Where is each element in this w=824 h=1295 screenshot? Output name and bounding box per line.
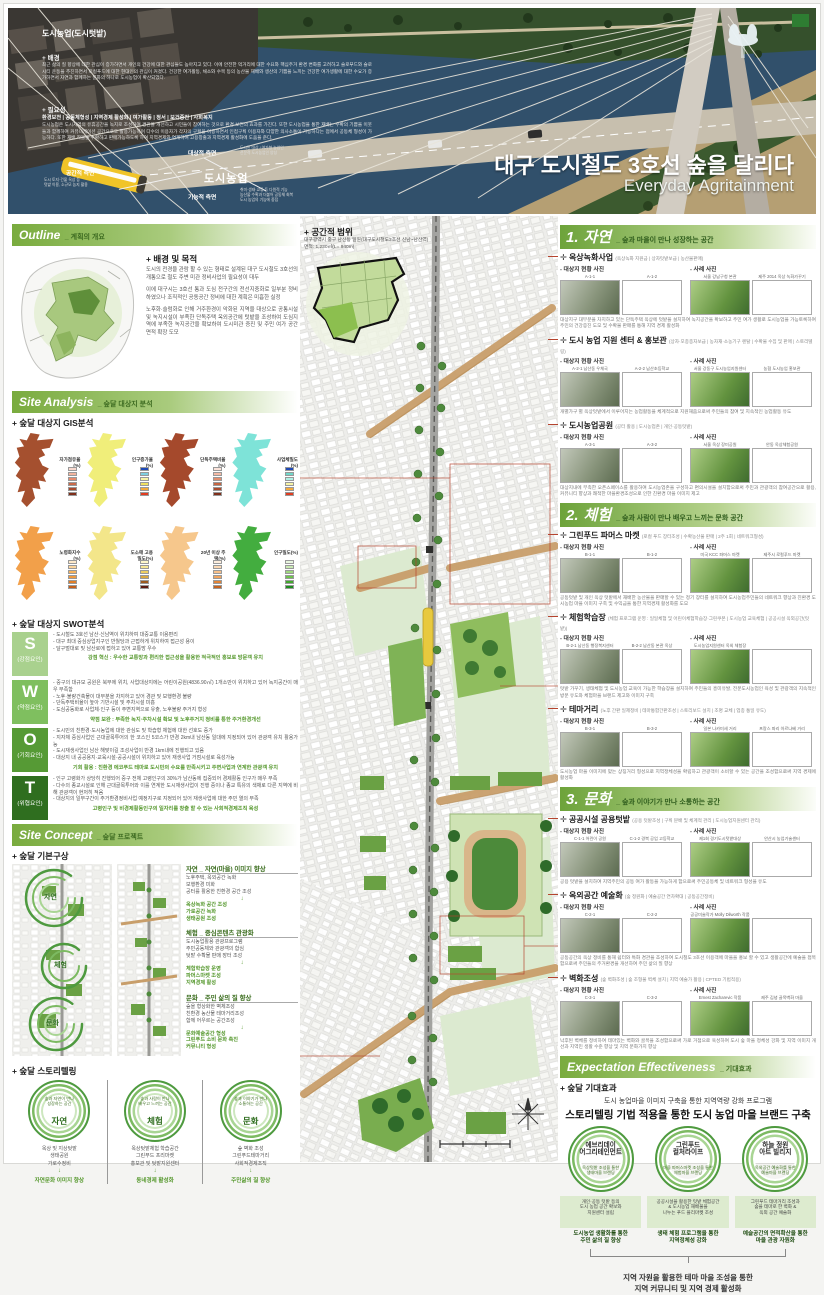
swot-row: T (위협요인) 인구 고령화가 상당히 진행되어 중구 전체 고령인구의 30… (12, 776, 298, 820)
gis-map: 자가점유율(%) (12, 431, 81, 521)
theme-result: 문화예술공간 형성 그린푸드 소비 문화 촉진 커뮤니티 형성 (186, 1031, 298, 1051)
gis-legend (68, 467, 77, 496)
story-result: 자연문화 이미지 향상 (15, 1176, 104, 1184)
gis-legend (285, 467, 294, 496)
swot-bullets: 인구 고령화가 상당히 진행되어 중구 전체 고령인구의 30%가 남산동에 집… (53, 776, 298, 803)
swot-bullet: 달구벌대로 및 남산로에 접하고 있어 교통망 우수 (53, 646, 298, 653)
photo-image (622, 842, 682, 877)
program-title: ✛ 도시농업공원 (공터 활용 | 도시농업존 | 개인·공동텃밭) (560, 420, 816, 431)
case-photos-label: - 사례 사진 (690, 542, 812, 551)
section-tagline: _ 숲과 사람이 만나 배우고 느끼는 문화 공간 (616, 513, 743, 523)
site-plan-map (300, 216, 558, 1162)
plus-icon: ✛ (560, 421, 569, 430)
case-photos-label: - 사례 사진 (690, 633, 812, 642)
pillar-result: 도시농업 생활화를 통한 주민 삶의 질 향상 (560, 1231, 641, 1246)
case-photos-label: - 사례 사진 (690, 264, 812, 273)
site-photo: B-3-2 (622, 726, 682, 767)
case-photo: 미국 KCC 파머스 마켓 (690, 552, 750, 593)
expectation-subtitle: _ 기대효과 (720, 1066, 752, 1073)
swot-list: S (강점요인) 도시철도 3호선 남산·신남역이 위치하여 대중교통 이용편리… (12, 632, 298, 820)
gis-choropleth (86, 526, 132, 600)
program-title-text: 그린푸드 파머스 마켓 (569, 531, 640, 540)
story-name: 자연 (30, 1115, 88, 1127)
case-photo: 제1회 경기도시텃밭대상 (690, 836, 750, 877)
photo-caption: 제주 2014 옥상 녹화가꾸기 (752, 274, 812, 280)
photo-image (622, 448, 682, 483)
storytelling-row: 숲과 자연이 만나 성장하는 공간 자연 옥상 및 지상텃밭 생태공원 가로수정… (12, 1080, 298, 1184)
hero-photo-banner: 도시농업(도시텃밭) + 배경 최근 삶의 질 향상에 대한 관심이 증가하면서… (8, 8, 816, 214)
swot-bullet: 대상지 내 공공용지·교육시설·공공시설이 위치하고 있어 재생사업 거점시설로… (53, 755, 298, 762)
swot-bullet: 중구의 대규모 공원은 북부에 위치, 사업대상지에는 어린이공원(4836.9… (53, 680, 298, 694)
swot-label: + 숲달 대상지 SWOT분석 (12, 618, 298, 630)
story-tagline: 숲과 이야기가 만나 소통하는 공간 (228, 1096, 274, 1107)
theme-result: 체험학습장 운영 파머스마켓 조성 지역경제 활성 (186, 966, 298, 986)
photo-image (560, 842, 620, 877)
gis-legend (140, 467, 149, 496)
section-number: 1. (566, 229, 579, 246)
program-caption: 대상지내에 부족한 오픈스페이스를 활용하여 도시농업존을 구성하고 편의시설을… (560, 485, 816, 498)
photo-image (622, 649, 682, 684)
photo-caption: B-2-1 남산동 행정복지센터 (560, 643, 620, 649)
purpose-block: + 배경 및 목적 도시의 전경을 관람 할 수 있는 형태로 설계된 대구 도… (146, 249, 298, 387)
legend-swatch (213, 482, 222, 486)
background-label: + 배경 (42, 52, 60, 62)
gis-legend (213, 560, 222, 589)
case-photo: 공공미술작가 Molly Dilworth 작품 (690, 912, 750, 953)
legend-swatch (140, 477, 149, 481)
photo-caption: 공공미술작가 Molly Dilworth 작품 (690, 912, 750, 918)
swot-bullet: 도시철도 3호선 남산·신남역이 위치하여 대중교통 이용편리 (53, 632, 298, 639)
photo-caption: C-1-2 경북 공업 고등학교 (622, 836, 682, 842)
expectation-pillar: 그린푸드 컬처라이프 마을 파머스마켓 조성을 통한 체험마을 브랜딩 공공시설… (647, 1126, 728, 1246)
program-title: ✛ 그린푸드 파머스 마켓 (로컬 푸드 장터조성 | 수확농산물 판매 | 2… (560, 530, 816, 541)
section-name: 자연 (584, 226, 612, 247)
swot-bullet: 인구 고령화가 상당히 진행되어 중구 전체 고령인구의 30%가 남산동에 집… (53, 776, 298, 783)
program-list: ✛ 공공시설 공용텃밭 (공용 텃밭조성 | 구획 분배 및 체계적 관리 | … (560, 814, 816, 1051)
photo-image (752, 842, 812, 877)
case-photos: 서울 강동구 도시농업지원센터 농협 도시농업 홍보관 (690, 366, 812, 407)
theme-items: 노후주택, 옥외공간 녹화 보행환경 미화 공터를 활용한 친환경 공간 조성 (186, 875, 298, 896)
program-block: ✛ 테마거리 (노후 간판 일제정비 | 테마통합간판조성 | 스토리보드 설치… (560, 704, 816, 782)
theme-items: 숲을 형상화한 벽체조성 친환경 농산물 테마거리조성 함께 어우르는 공간조성 (186, 1004, 298, 1025)
gis-legend (285, 560, 294, 589)
connector-lines (590, 1249, 786, 1257)
connector-stem (688, 1257, 689, 1263)
scope-text: 대구광역시 중구 남산동 일원(대구도시철도3호선 신남~남산역) (304, 238, 454, 245)
site-photo-column: - 대상지 현황 사진 C-1-1 어린이 공원 (560, 826, 682, 877)
need-text: 도시농업은 도시지역의 유휴공간을 녹지로 조성하여 경관을 개선하고 시민들이… (42, 122, 372, 142)
site-photo: B-1-2 (622, 552, 682, 593)
purpose-item: 노후화·슬럼화로 인해 거주환경이 악화된 지역을 대상으로 공통시설 및 녹지… (146, 307, 298, 337)
analysis-header: Site Analysis _ 숲달 대상지 분석 (12, 391, 298, 413)
pillar-subtitle: 마을 파머스마켓 조성을 통한 체험마을 브랜딩 (662, 1165, 714, 1176)
program-title-text: 도시농업공원 (569, 421, 613, 430)
swot-row: W (약점요인) 중구의 대규모 공원은 북부에 위치, 사업대상지에는 어린이… (12, 680, 298, 724)
pillar-result: 생태 체험 프로그램을 통한 지역정체성 강화 (647, 1231, 728, 1246)
down-arrow-icon: ↓ (206, 1168, 295, 1174)
map-leader-line (548, 708, 558, 709)
swot-bullet: 도시재생사업인 남산 해맞이길 조성사업이 반경 1km내에 진행되고 있음 (53, 748, 298, 755)
diagram-functional-desc: 취미·생태·교류 등 다원적 기능 농산물 수확과 더불어 공동체 회복 도시 … (240, 188, 335, 203)
program-sections: 1. 자연 _ 숲과 마을이 만나 성장하는 공간 ✛ 옥상녹화사업 (옥상녹화… (560, 225, 816, 1051)
scope-block: + 공간적 범위 대구광역시 중구 남산동 일원(대구도시철도3호선 신남~남산… (304, 226, 454, 251)
section-header: 1. 자연 _ 숲과 마을이 만나 성장하는 공간 (560, 225, 816, 249)
story-result: 동네경제 활성화 (111, 1176, 200, 1184)
case-photos: 공공미술작가 Molly Dilworth 작품 (690, 912, 812, 953)
swot-letter: O (12, 731, 48, 748)
site-photo: C-3-1 (560, 995, 620, 1036)
program-tags: (숲 벽화조성 | 숲 조형물 벽체 설치 | 지역 예술가 활용 | CPTE… (601, 977, 741, 982)
program-block: ✛ 옥상녹화사업 (옥상녹화 지원금 | 상자텃밭보급 | 농산물판매) - 대… (560, 252, 816, 330)
legend-swatch (285, 477, 294, 481)
site-photo-column: - 대상지 현황 사진 B-2-1 남산동 행정복지센터 (560, 633, 682, 684)
case-photo-column: - 사례 사진 서울 강남구청 본관 (690, 264, 812, 315)
gis-map: 20년 이상 주택(%) (157, 524, 226, 614)
photo-image (560, 918, 620, 953)
legend-swatch (68, 467, 77, 471)
program-title-text: 도시 농업 지원 센터 & 홍보관 (569, 336, 667, 345)
case-photo: 안산시 농업기술센터 (752, 836, 812, 877)
concept-header: Site Concept _ 숲달 프로젝트 (12, 824, 298, 846)
case-photo: 농협 도시농업 홍보관 (752, 366, 812, 407)
site-photos-label: - 대상지 현황 사진 (560, 985, 682, 994)
background-text: 최근 삶의 질 향상에 대한 관심이 증가하면서 개인의 건강에 대한 관심들도… (42, 62, 372, 82)
expectation-pillars: 에브리데이 어그리테인먼트 옥상텃밭 조성을 통한 생태마을 브랜딩 개인·공동… (560, 1126, 816, 1246)
program-title: ✛ 옥외공간 예술화 (숲 정원화 | 예술공간 연차확대 | 공동공간정비) (560, 890, 816, 901)
pillar-name: 에브리데이 어그리테인먼트 (570, 1142, 632, 1158)
site-photos-label: - 대상지 현황 사진 (560, 633, 682, 642)
photo-image (690, 1001, 750, 1036)
concept-diagram-spirals: 자연 체험 문화 (12, 864, 112, 1061)
plus-icon: ✛ (560, 705, 569, 714)
plus-icon: ✛ (560, 974, 569, 983)
photo-heading: 도시농업(도시텃밭) (42, 28, 106, 39)
legend-swatch (140, 570, 149, 574)
center-column: + 공간적 범위 대구광역시 중구 남산동 일원(대구도시철도3호선 신남~남산… (300, 216, 558, 1162)
legend-swatch (140, 560, 149, 564)
story-items: 옥상텃밭체험 학습공간 그린푸드 프리마켓 홍보관 및 텃밭지원센터 (111, 1146, 200, 1168)
site-photos: C-3-1 C-3-2 (560, 995, 682, 1036)
diagram-center: 도시농업 (204, 170, 248, 186)
site-photo: A-1-2 (622, 274, 682, 315)
site-photo: A-2-1 남산동 우체국 (560, 366, 620, 407)
site-photos-label: - 대상지 현황 사진 (560, 716, 682, 725)
legend-swatch (213, 585, 222, 589)
section-header: 3. 문화 _ 숲과 이야기가 만나 소통하는 공간 (560, 787, 816, 811)
map-leader-line (548, 977, 558, 978)
swot-letter: W (12, 683, 48, 700)
photo-image (752, 372, 812, 407)
case-photo: 제주 김녕 골목벽화 마을 (752, 995, 812, 1036)
case-photos: 서울 옥상 장미공원 안동 옥상체험공원 (690, 442, 812, 483)
site-photo: C-2-2 (622, 912, 682, 953)
swot-category: (약점요인) (12, 702, 48, 711)
photo-image (752, 649, 812, 684)
purpose-item: 도시의 전경을 관람 할 수 있는 형태로 설계된 대구 도시철도 3호선의 개… (146, 267, 298, 282)
swot-body: 인구 고령화가 상당히 진행되어 중구 전체 고령인구의 30%가 남산동에 집… (53, 776, 298, 820)
case-photo-column: - 사례 사진 서울 강동구 도시농업지원센터 (690, 356, 812, 407)
program-list: ✛ 옥상녹화사업 (옥상녹화 지원금 | 상자텃밭보급 | 농산물판매) - 대… (560, 252, 816, 498)
case-photo: 일본 나카미세 거리 (690, 726, 750, 767)
program-tags: (공용 텃밭조성 | 구획 분배 및 체계적 관리 | 도시농업지원센터 관리) (632, 818, 760, 823)
site-photo: B-2-2 남산동 본관 옥상 (622, 643, 682, 684)
swot-badge: O (기회요인) (12, 728, 48, 772)
swot-bullet: 단독주택비율이 높아 기반시설 및 주차시설 미흡 (53, 700, 298, 707)
legend-swatch (68, 560, 77, 564)
legend-swatch (68, 580, 77, 584)
legend-swatch (140, 575, 149, 579)
site-photos: B-3-1 B-3-2 (560, 726, 682, 767)
concept-diagram-plan (117, 864, 181, 1061)
need-keywords: 환경보전 | 공동체형성 | 지역경제 활성화 | 여가활동 | 정서 | 보건… (42, 114, 213, 121)
program-tags: (숲 정원화 | 예술공간 연차확대 | 공동공간정비) (625, 894, 714, 899)
program-caption: 공동공간의 옥상 정비를 통해 쉼터와 특화 경관을 조성하여 도시철도 3호선… (560, 955, 816, 968)
expectation-line1: 도시 농업마을 이미지 구축을 통한 지역역량 강화 프로그램 (560, 1096, 816, 1106)
case-photo: 프랑스 파리 아르나베 거리 (752, 726, 812, 767)
legend-swatch (140, 472, 149, 476)
photo-image (752, 280, 812, 315)
legend-swatch (140, 482, 149, 486)
swot-letter: S (12, 635, 48, 652)
plus-icon: ✛ (560, 336, 569, 345)
swot-summary: 기회 활용 : 친환경 에코푸드 테마로 도시민의 수요를 만족시키고 주변사업… (53, 764, 298, 771)
spiral-ring-icon: 에브리데이 어그리테인먼트 옥상텃밭 조성을 통한 생태마을 브랜딩 (568, 1126, 634, 1192)
photo-caption: 서울 강동구 도시농업지원센터 (690, 366, 750, 372)
legend-swatch (140, 580, 149, 584)
legend-swatch (285, 560, 294, 564)
spiral-ring-icon: 숲과 자연이 만나 성장하는 공간 자연 (28, 1080, 90, 1142)
theme-title: 자연 _ 자연(마을) 이미지 향상 (186, 864, 298, 874)
swot-row: O (기회요인) 도시민의 친환경·도시농업에 대한 관심도 및 학습형 체험에… (12, 728, 298, 772)
program-tags: (공터 활용 | 도시농업존 | 개인·공동텃밭) (615, 424, 692, 429)
story-tagline: 숲과 사람이 만나 배우고 느끼는 공간 (132, 1096, 178, 1107)
plus-icon: ✛ (560, 613, 569, 622)
site-photos: C-1-1 어린이 공원 C-1-2 경북 공업 고등학교 (560, 836, 682, 877)
story-name: 문화 (222, 1115, 280, 1127)
concept-title: Site Concept (19, 828, 92, 842)
story-items: 숲 벽화 조성 그린푸드테마거리 사회적경제조직 (206, 1146, 295, 1168)
swot-bullets: 도시철도 3호선 남산·신남역이 위치하여 대중교통 이용편리대구 최대 중심상… (53, 632, 298, 652)
gis-choropleth (231, 433, 277, 507)
program-title-text: 체험학습장 (569, 613, 606, 622)
program-block: ✛ 공공시설 공용텃밭 (공용 텃밭조성 | 구획 분배 및 체계적 관리 | … (560, 814, 816, 885)
concept-theme: 문화 _ 주민 삶의 질 향상 숲을 형상화한 벽체조성 친환경 농산물 테마거… (186, 993, 298, 1051)
site-photo: A-2-2 남산초등학교 (622, 366, 682, 407)
case-photo: 서울 강동구 도시농업지원센터 (690, 366, 750, 407)
site-photos-label: - 대상지 현황 사진 (560, 356, 682, 365)
storytelling-item: 숲과 자연이 만나 성장하는 공간 자연 옥상 및 지상텃밭 생태공원 가로수정… (12, 1080, 107, 1184)
photo-image (690, 280, 750, 315)
legend-swatch (140, 585, 149, 589)
purpose-label: + 배경 및 목적 (146, 253, 298, 265)
program-block: ✛ 옥외공간 예술화 (숲 정원화 | 예술공간 연차확대 | 공동공간정비) … (560, 890, 816, 968)
swot-bullets: 중구의 대규모 공원은 북부에 위치, 사업대상지에는 어린이공원(4836.9… (53, 680, 298, 714)
swot-summary: 약점 보완 : 부족한 녹지·주차시설 확보 및 노후주거지 정비를 통한 주거… (53, 716, 298, 723)
site-photo: B-1-1 (560, 552, 620, 593)
case-photo: 도시농업지원센터 옥외 체험장 (690, 643, 750, 684)
legend-swatch (285, 482, 294, 486)
legend-swatch (285, 585, 294, 589)
program-caption: 낙후된 벽체를 정비하여 테마있는 벽화와 골목을 조성함으로써 가로 거점으로… (560, 1038, 816, 1051)
concept-theme: 체험 _ 중심콘텐츠 관광화 도시농업활용 관광프로그램 주민공동체와 관광객의… (186, 928, 298, 986)
pillar-box: 그린푸드 테마거리 조성과 숲을 테마로 한 벽화 & 옥외 공간 예술화 (735, 1196, 816, 1228)
section-tagline: _ 숲과 마을이 만나 성장하는 공간 (616, 235, 713, 245)
analysis-subtitle: _ 숲달 대상지 분석 (98, 401, 153, 408)
expectation-label: + 숲달 기대효과 (560, 1082, 816, 1094)
spiral-ring-icon: 하늘 정원 아트 빌리지 옥외공간 예술화를 통한 예술마을 브랜딩 (742, 1126, 808, 1192)
scope-label: + 공간적 범위 (304, 226, 454, 238)
theme-title: 체험 _ 중심콘텐츠 관광화 (186, 928, 298, 938)
legend-swatch (140, 467, 149, 471)
diagram-functional-label: 기능적 측면 (188, 192, 216, 201)
photo-image (752, 732, 812, 767)
case-photo (752, 912, 812, 953)
case-photos: 도시농업지원센터 옥외 체험장 (690, 643, 812, 684)
diagram-spatial-label: 공간적 측면 (66, 168, 94, 177)
gis-map-label: 인구밀도(%) (274, 550, 298, 556)
photo-image (690, 372, 750, 407)
swot-badge: W (약점요인) (12, 680, 48, 724)
analysis-title: Site Analysis (19, 395, 93, 409)
photo-image (560, 732, 620, 767)
photo-image (622, 280, 682, 315)
gis-legend (68, 560, 77, 589)
site-photos: A-1-1 A-1-2 (560, 274, 682, 315)
photo-caption: Ernest Zacharevic 작품 (690, 995, 750, 1001)
scope-inset-map (306, 252, 410, 356)
swot-bullet: 대상지의 일부구간이 주거환경정비사업 예정지구로 지정되어 있어 재생사업에 … (53, 796, 298, 803)
map-leader-line (548, 818, 558, 819)
map-leader-line (548, 534, 558, 535)
photo-image (560, 558, 620, 593)
case-photo-column: - 사례 사진 공공미술작가 Molly Dilworth 작품 (690, 902, 812, 953)
legend-swatch (285, 565, 294, 569)
story-result: 주민삶의 질 향상 (206, 1176, 295, 1184)
program-tags: (노후 간판 일제정비 | 테마통합간판조성 | 스토리보드 설치 | 조명 교… (601, 708, 766, 713)
section-number: 3. (566, 791, 579, 808)
legend-swatch (213, 487, 222, 491)
photo-caption: 제1회 경기도시텃밭대상 (690, 836, 750, 842)
legend-swatch (213, 472, 222, 476)
map-leader-line (548, 256, 558, 257)
swot-bullet: 도심공동화로 사업체·인구 등이 주변지역으로 유출, 노후불량 주거지 형성 (53, 707, 298, 714)
expectation-pillar: 하늘 정원 아트 빌리지 옥외공간 예술화를 통한 예술마을 브랜딩 그린푸드 … (735, 1126, 816, 1246)
daegu-location-map (12, 249, 140, 387)
program-title-text: 벽화조성 (569, 974, 598, 983)
case-photos-label: - 사례 사진 (690, 985, 812, 994)
site-photo-column: - 대상지 현황 사진 B-1-1 (560, 542, 682, 593)
story-label: + 숲달 스토리텔링 (12, 1065, 298, 1077)
case-photo: 서울 강남구청 본관 (690, 274, 750, 315)
case-photo: Ernest Zacharevic 작품 (690, 995, 750, 1036)
diagram-target-label: 대상적 측면 (188, 148, 216, 157)
swot-bullet: 대구 최대 중심상업지구인 반월당과 근접하게 위치하여 접근성 용이 (53, 639, 298, 646)
legend-swatch (68, 487, 77, 491)
pillar-subtitle: 옥상텃밭 조성을 통한 생태마을 브랜딩 (575, 1165, 627, 1176)
photo-image (690, 649, 750, 684)
down-arrow-icon: ↓ (111, 1168, 200, 1174)
legend-swatch (285, 487, 294, 491)
program-block: ✛ 체험학습장 (체험 프로그램 운영 : 일일체험 및 어린이체험학습장·그린… (560, 612, 816, 699)
legend-swatch (285, 580, 294, 584)
photo-image (752, 918, 812, 953)
gis-choropleth (86, 433, 132, 507)
program-section: 2. 체험 _ 숲과 사람이 만나 배우고 느끼는 문화 공간 ✛ 그린푸드 파… (560, 503, 816, 782)
section-number: 2. (566, 507, 579, 524)
program-tags: (로컬 푸드 장터조성 | 수확농산물 판매 | 2주 1회 | 네트워크형성) (642, 534, 764, 539)
swot-body: 도시민의 친환경·도시농업에 대한 관심도 및 학습형 체험에 대한 선호도 증… (53, 728, 298, 772)
photo-image (622, 918, 682, 953)
case-photo: 제주 2014 옥상 녹화가꾸기 (752, 274, 812, 315)
site-photo: B-3-1 (560, 726, 620, 767)
legend-swatch (68, 482, 77, 486)
photo-image (560, 280, 620, 315)
case-photos: Ernest Zacharevic 작품 제주 김녕 골목벽화 마을 (690, 995, 812, 1036)
need-label: + 필요성 (42, 104, 66, 114)
spiral-label-culture: 문화 (46, 1018, 59, 1028)
emblem (792, 14, 809, 27)
program-title: ✛ 공공시설 공용텃밭 (공용 텃밭조성 | 구획 분배 및 체계적 관리 | … (560, 814, 816, 825)
photo-image (622, 732, 682, 767)
program-title-text: 옥상녹화사업 (569, 253, 613, 262)
site-photos-label: - 대상지 현황 사진 (560, 826, 682, 835)
legend-swatch (68, 575, 77, 579)
site-photo-column: - 대상지 현황 사진 A-2-1 남산동 우체국 (560, 356, 682, 407)
outline-header: Outline _ 계획의 개요 (12, 224, 298, 246)
legend-swatch (68, 570, 77, 574)
legend-swatch (140, 492, 149, 496)
gis-map: 노령화지수(%) (12, 524, 81, 614)
legend-swatch (140, 565, 149, 569)
gis-choropleth (231, 526, 277, 600)
swot-row: S (강점요인) 도시철도 3호선 남산·신남역이 위치하여 대중교통 이용편리… (12, 632, 298, 676)
photo-image (560, 1001, 620, 1036)
program-caption: 공용 텃밭을 설치하여 지역주민의 공동 여가 활동을 가능하게 함으로써 주민… (560, 879, 816, 885)
photo-caption: 도시농업지원센터 옥외 체험장 (690, 643, 750, 649)
left-column: Outline _ 계획의 개요 + 배경 및 목적 도시의 전경을 관람 할 … (12, 220, 298, 1184)
program-caption: 도시농업 마을 이미지에 맞는 상징거리 형성으로 지역정체성을 확립하고 관광… (560, 769, 816, 782)
concept-theme-list: 자연 _ 자연(마을) 이미지 향상 노후주택, 옥외공간 녹화 보행환경 미화… (186, 864, 298, 1061)
program-section: 3. 문화 _ 숲과 이야기가 만나 소통하는 공간 ✛ 공공시설 공용텃밭 (… (560, 787, 816, 1051)
down-arrow-icon: ↓ (15, 1168, 104, 1174)
legend-swatch (285, 492, 294, 496)
poster-title-english: Everyday Agritainment (624, 176, 794, 196)
swot-body: 중구의 대규모 공원은 북부에 위치, 사업대상지에는 어린이공원(4836.9… (53, 680, 298, 724)
site-photo: B-2-1 남산동 행정복지센터 (560, 643, 620, 684)
photo-caption: 제주 김녕 골목벽화 마을 (752, 995, 812, 1001)
map-leader-line (548, 424, 558, 425)
map-leader-line (548, 894, 558, 895)
swot-summary: 고령인구 및 비경제활동인구의 일자리를 창출 할 수 있는 사회적경제조직 육… (53, 805, 298, 812)
purpose-item: 이에 대구시는 3호선 통과 도심 전구간의 전선지중화로 일부분 정비하였으나… (146, 287, 298, 302)
photo-image (690, 842, 750, 877)
story-tagline: 숲과 자연이 만나 성장하는 공간 (36, 1096, 82, 1107)
legend-swatch (285, 570, 294, 574)
site-photos-label: - 대상지 현황 사진 (560, 902, 682, 911)
diagram-spatial-desc: 도시 토지·건물 옥상 등 텃밭 이용, 소규모 농지 활용 (44, 178, 139, 188)
site-photos: A-2-1 남산동 우체국 A-2-2 남산초등학교 (560, 366, 682, 407)
legend-swatch (285, 467, 294, 471)
swot-letter: T (12, 779, 48, 796)
gis-choropleth (158, 433, 204, 507)
pillar-subtitle: 옥외공간 예술화를 통한 예술마을 브랜딩 (749, 1165, 801, 1176)
swot-category: (기회요인) (12, 750, 48, 759)
photo-image (690, 918, 750, 953)
expectation-header: Expectation Effectiveness _ 기대효과 (560, 1056, 816, 1078)
pillar-name: 그린푸드 컬처라이프 (657, 1142, 719, 1158)
gis-map: 단독주택비율(%) (157, 431, 226, 521)
site-photos-label: - 대상지 현황 사진 (560, 264, 682, 273)
